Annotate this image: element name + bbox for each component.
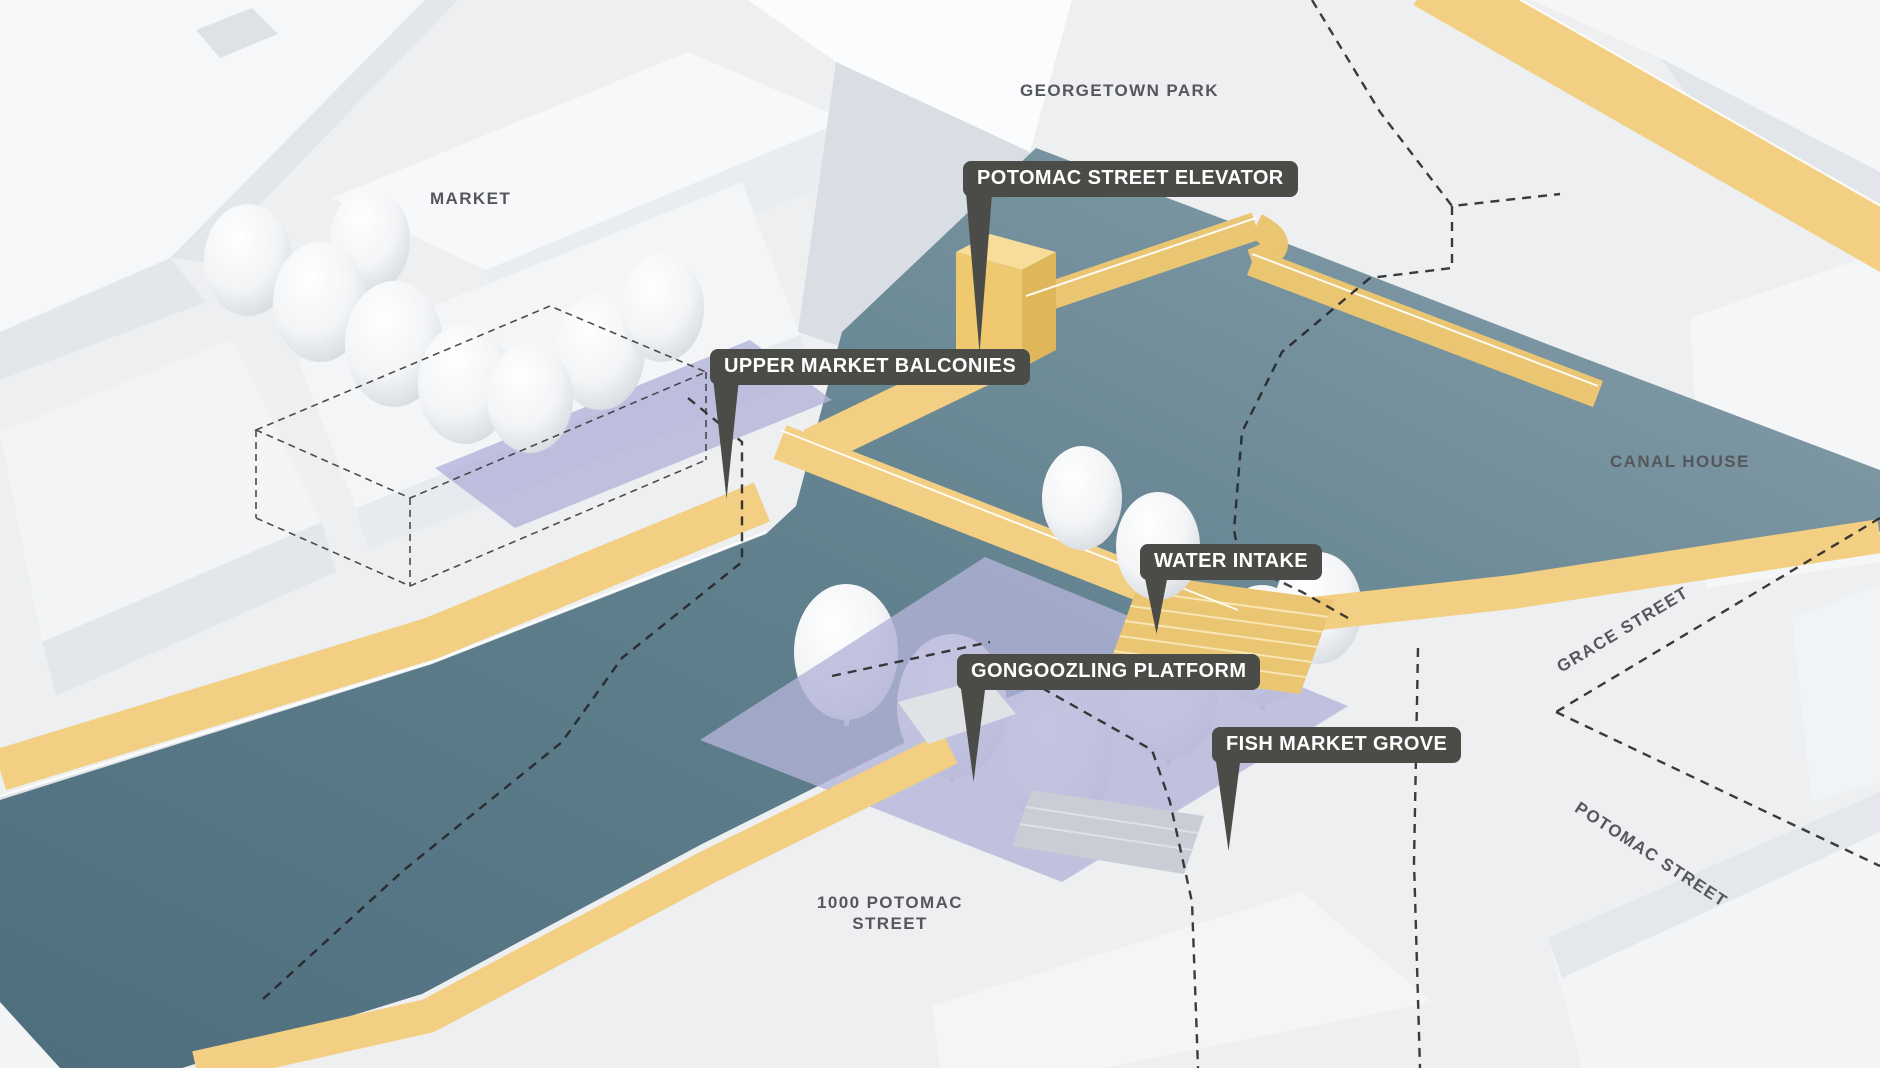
callout-water-intake: WATER INTAKE	[1140, 544, 1322, 580]
callout-fish-market-grove: FISH MARKET GROVE	[1212, 727, 1461, 763]
label-georgetown-park: GEORGETOWN PARK	[1020, 81, 1219, 101]
callout-label: POTOMAC STREET ELEVATOR	[963, 161, 1298, 197]
site-diagram: MARKET GEORGETOWN PARK CANAL HOUSE GRACE…	[0, 0, 1880, 1068]
label-market: MARKET	[430, 189, 511, 209]
callout-label: FISH MARKET GROVE	[1212, 727, 1461, 763]
potomac-street-elevator-tower	[956, 234, 1056, 368]
callout-potomac-street-elevator: POTOMAC STREET ELEVATOR	[963, 161, 1298, 197]
callout-label: UPPER MARKET BALCONIES	[710, 349, 1030, 385]
callout-label: WATER INTAKE	[1140, 544, 1322, 580]
label-1000-potomac-street: 1000 POTOMAC STREET	[800, 892, 980, 935]
callout-label: GONGOOZLING PLATFORM	[957, 654, 1260, 690]
callout-gongoozling-platform: GONGOOZLING PLATFORM	[957, 654, 1260, 690]
label-canal-house: CANAL HOUSE	[1610, 452, 1750, 472]
callout-upper-market-balconies: UPPER MARKET BALCONIES	[710, 349, 1030, 385]
